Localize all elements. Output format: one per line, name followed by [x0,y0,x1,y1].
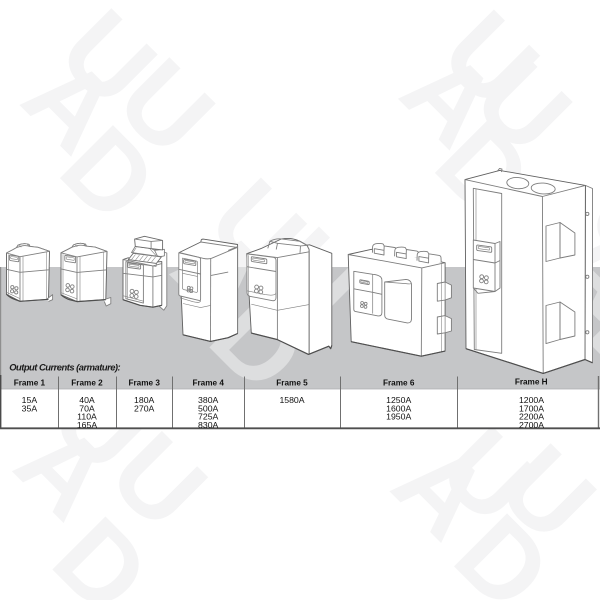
svg-text:1580A: 1580A [279,395,304,405]
svg-text:1250A1600A1950A: 1250A1600A1950A [386,395,411,422]
svg-text:1200A1700A2200A2700A: 1200A1700A2200A2700A [519,395,544,430]
svg-text:Output Currents (armature):: Output Currents (armature): [9,361,120,372]
svg-text:Frame 6: Frame 6 [383,379,415,388]
svg-text:Frame H: Frame H [515,377,548,386]
svg-text:Frame 4: Frame 4 [192,379,224,388]
svg-text:Frame 1: Frame 1 [14,379,46,388]
svg-text:180A270A: 180A270A [134,395,154,413]
svg-text:Frame 5: Frame 5 [276,379,308,388]
svg-text:Frame 3: Frame 3 [128,379,160,388]
svg-text:15A35A: 15A35A [22,395,38,413]
svg-text:380A500A725A830A: 380A500A725A830A [198,395,218,430]
svg-text:Frame 2: Frame 2 [71,379,103,388]
svg-text:40A70A110A165A: 40A70A110A165A [77,395,97,430]
